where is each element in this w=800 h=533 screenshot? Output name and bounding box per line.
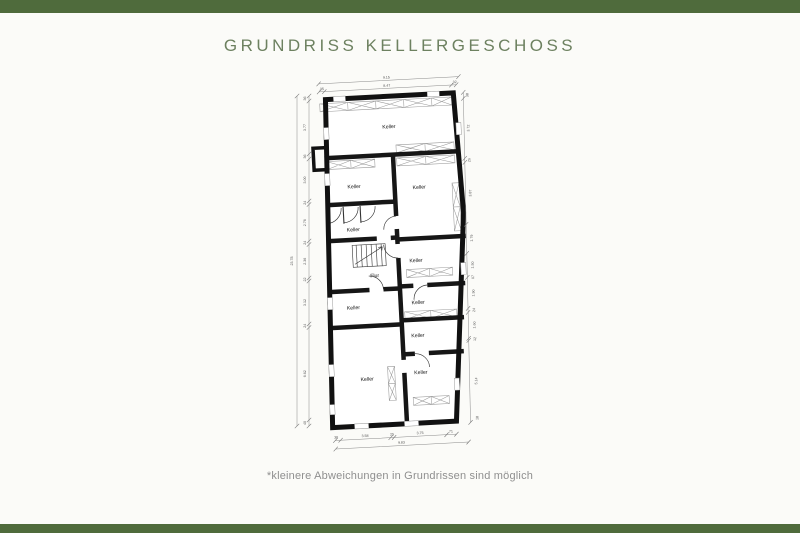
dimension-label: .32 bbox=[452, 80, 457, 84]
room-label: Keller bbox=[411, 333, 425, 340]
dimension-label: 3.87 bbox=[468, 190, 472, 197]
dimension-label: 3.58 bbox=[362, 434, 369, 438]
dimension-label: 18 bbox=[475, 416, 479, 420]
dimension-label: 1.50 bbox=[471, 261, 475, 268]
dimension-label: 9.83 bbox=[398, 440, 405, 444]
dimension-label: 8.47 bbox=[383, 84, 390, 88]
dimension-label: 5.14 bbox=[474, 377, 478, 384]
floorplan-dimensions-left: 23.78363.77363.00242.76242.36223.12246.6… bbox=[290, 94, 311, 428]
dimension-label: 3.12 bbox=[303, 299, 307, 306]
dimension-label: 1.90 bbox=[472, 289, 476, 296]
dimension-label: 24 bbox=[303, 201, 307, 205]
room-label: Keller bbox=[412, 184, 426, 191]
dimension-label: 12 bbox=[473, 337, 477, 341]
dimension-label: 1.60 bbox=[472, 321, 476, 328]
dimension-label: 1.79 bbox=[470, 235, 474, 242]
dimension-label: 24 bbox=[303, 241, 307, 245]
room-label: Keller bbox=[347, 305, 361, 312]
dimension-label: 24 bbox=[472, 308, 476, 312]
dimension-label: 25 bbox=[390, 432, 394, 436]
bottom-accent-bar bbox=[0, 524, 800, 533]
top-accent-bar bbox=[0, 0, 800, 13]
dimension-label: .35 bbox=[319, 87, 324, 91]
dimension-label: 3.75 bbox=[416, 431, 423, 435]
page-title: GRUNDRISS KELLERGESCHOSS bbox=[0, 36, 800, 56]
dimension-label: 71 bbox=[449, 429, 453, 433]
room-label: Keller bbox=[414, 370, 428, 377]
dimension-label: 3.72 bbox=[466, 125, 470, 132]
dimension-label: 9.15 bbox=[383, 75, 390, 79]
dimension-label: 22 bbox=[303, 278, 307, 282]
dimension-label: 36 bbox=[303, 155, 307, 159]
floorplan-building: KellerKellerKellerKellerFlurKellerKeller… bbox=[309, 71, 487, 451]
dimension-label: 36 bbox=[303, 97, 307, 101]
dimension-label: 3.00 bbox=[303, 177, 307, 184]
dimension-label: 40 bbox=[303, 421, 307, 425]
dimension-label: 26 bbox=[467, 158, 471, 162]
floorplan: 23.78363.77363.00242.76242.36223.12246.6… bbox=[276, 66, 491, 466]
dimension-label: 23.78 bbox=[290, 257, 294, 266]
room-label: Keller bbox=[360, 376, 374, 383]
dimension-label: 2.36 bbox=[303, 258, 307, 265]
room-label: Keller bbox=[382, 124, 396, 131]
dimension-label: 24 bbox=[303, 324, 307, 328]
room-label: Keller bbox=[347, 184, 361, 191]
dimension-label: 38 bbox=[465, 93, 469, 97]
dimension-label: 6.62 bbox=[303, 370, 307, 377]
room-label: Flur bbox=[370, 273, 380, 279]
dimension-label: 3.77 bbox=[303, 124, 307, 131]
room-label: Keller bbox=[409, 258, 423, 265]
dimension-label: 07 bbox=[471, 275, 475, 279]
room-label: Keller bbox=[347, 227, 361, 234]
footer-disclaimer: *kleinere Abweichungen in Grundrissen si… bbox=[0, 470, 800, 482]
room-label: Keller bbox=[411, 300, 425, 307]
dimension-label: 2.76 bbox=[303, 219, 307, 226]
dimension-label: 38 bbox=[334, 435, 338, 439]
